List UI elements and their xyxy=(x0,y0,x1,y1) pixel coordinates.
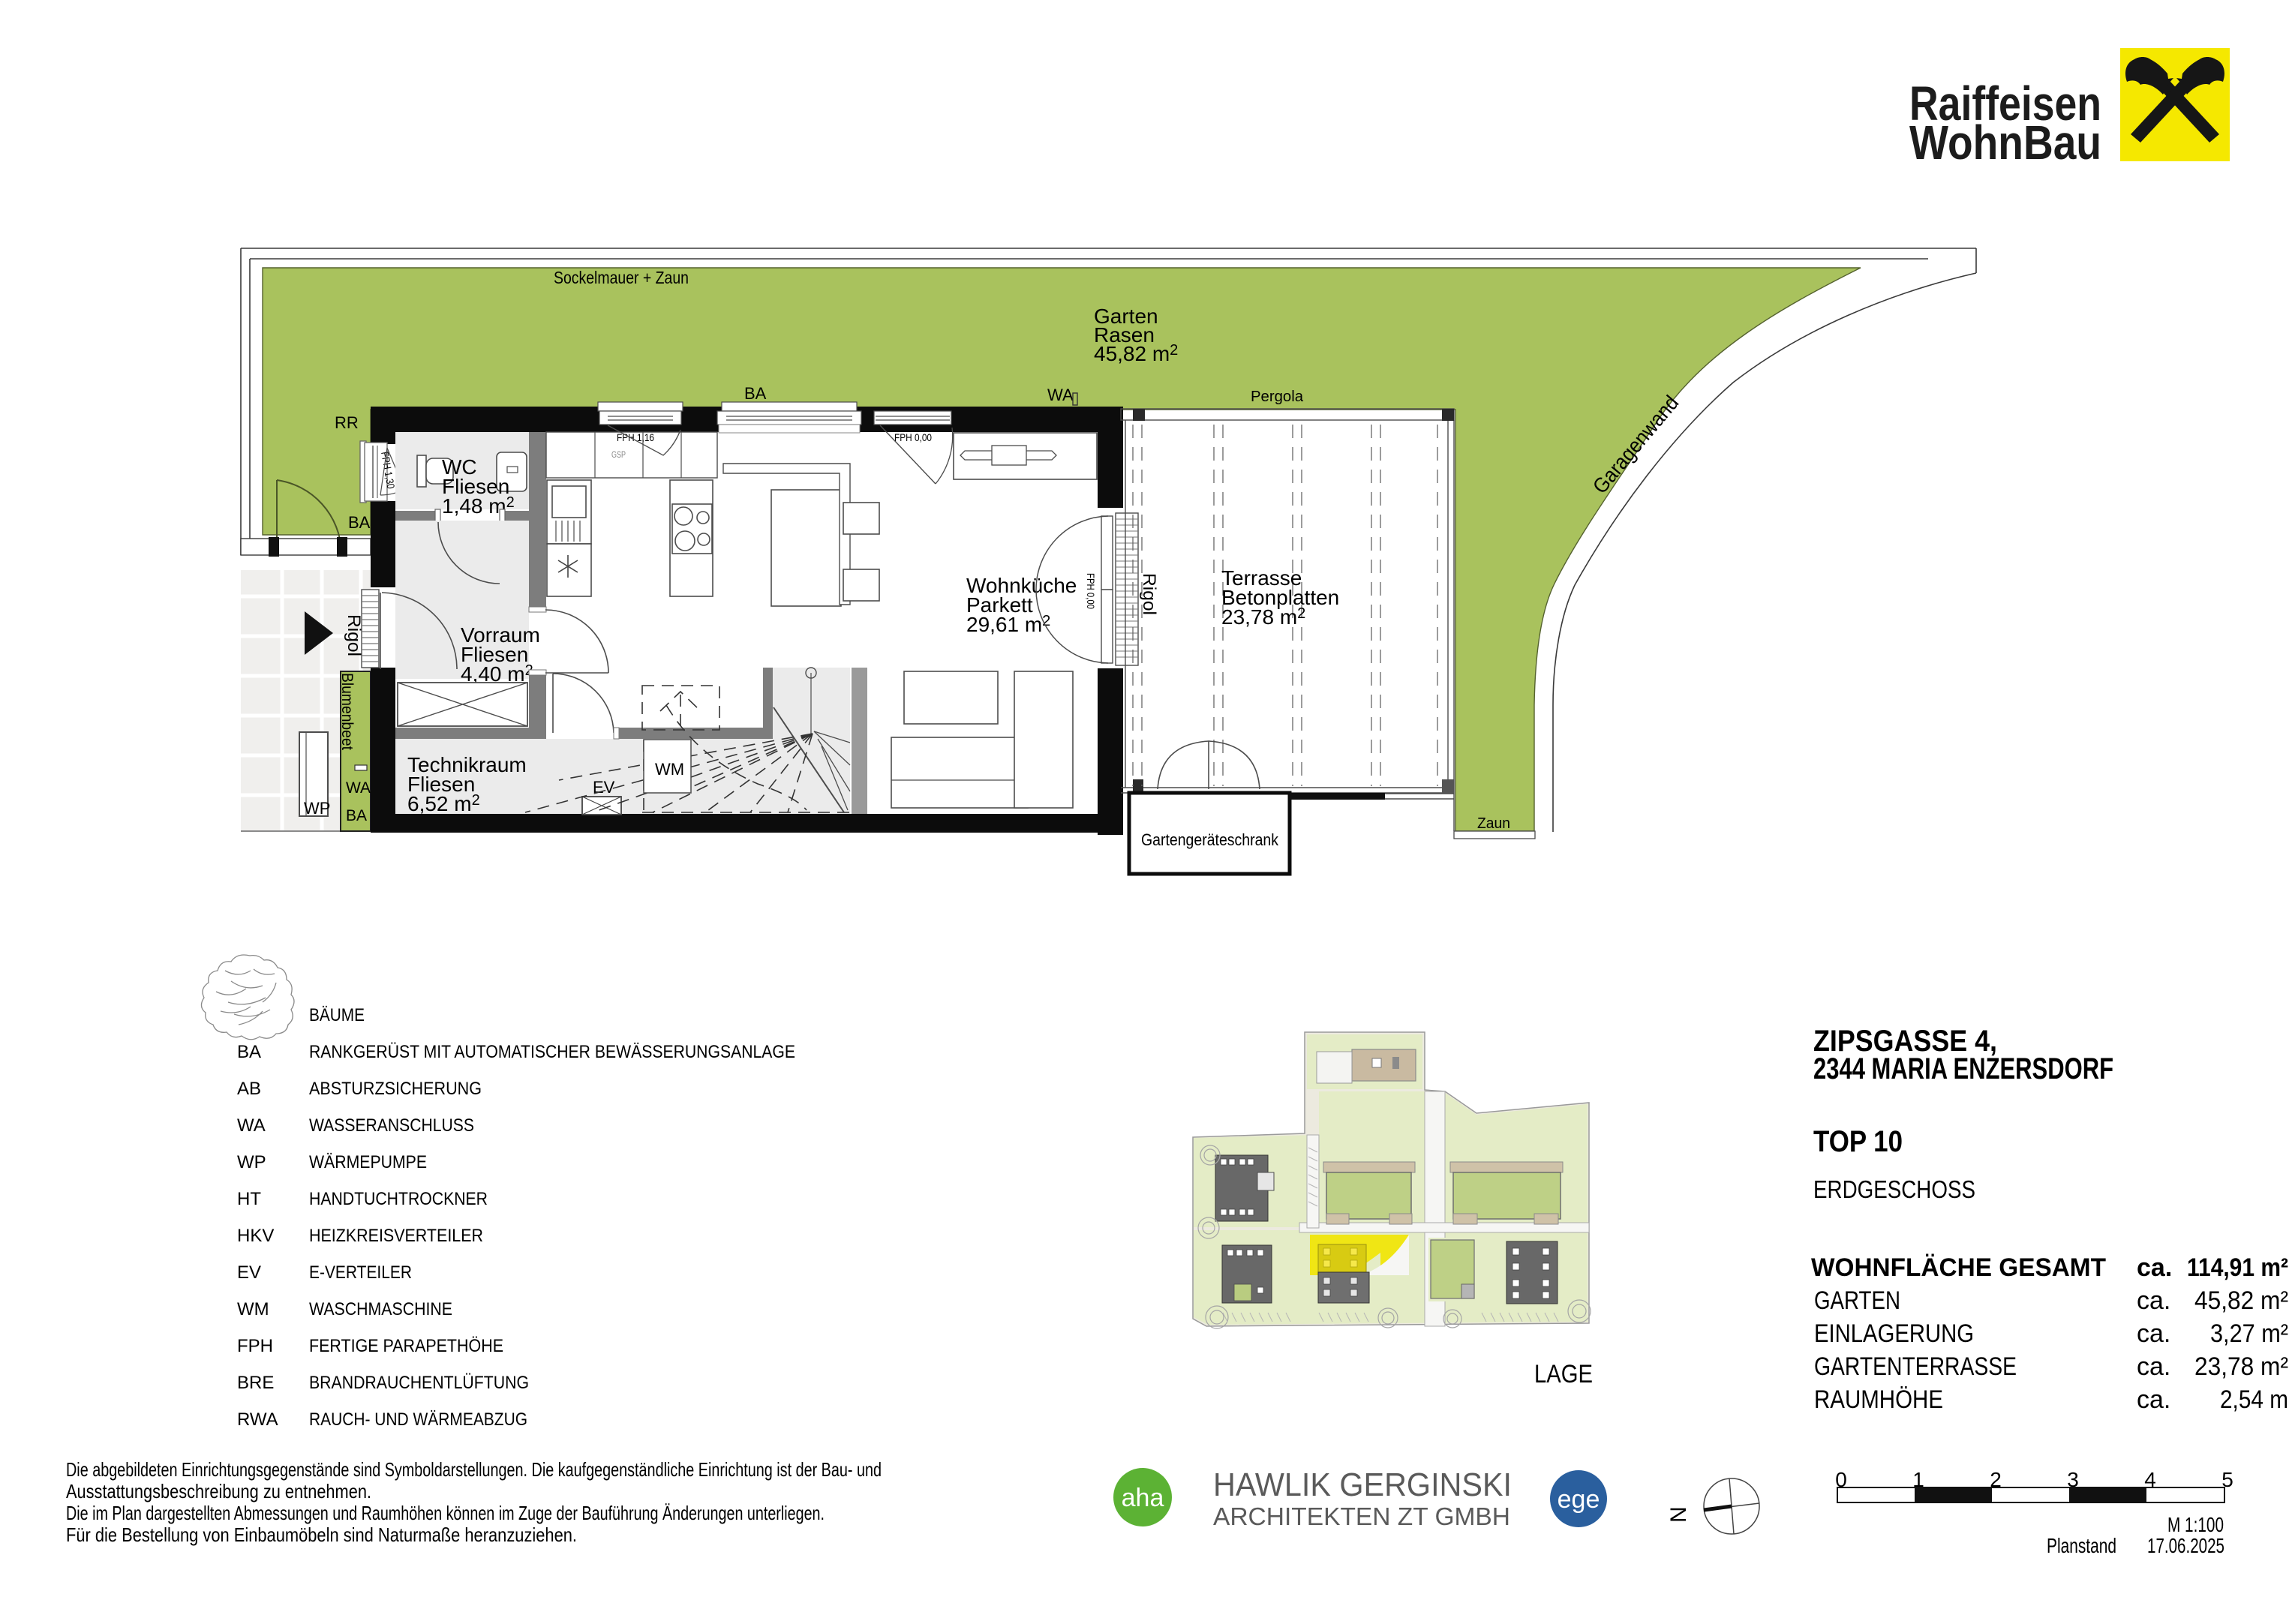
svg-text:FPH 0,00: FPH 0,00 xyxy=(894,431,932,443)
svg-text:BÄUME: BÄUME xyxy=(309,1005,365,1025)
svg-text:23,78 m2: 23,78 m2 xyxy=(1221,605,1305,629)
svg-text:BRANDRAUCHENTLÜFTUNG: BRANDRAUCHENTLÜFTUNG xyxy=(309,1373,529,1393)
svg-text:EV: EV xyxy=(237,1262,261,1283)
svg-text:TOP 10: TOP 10 xyxy=(1813,1125,1903,1158)
svg-text:2,54 m: 2,54 m xyxy=(2220,1385,2288,1414)
svg-text:RAUCH- UND WÄRMEABZUG: RAUCH- UND WÄRMEABZUG xyxy=(309,1409,527,1430)
svg-text:N: N xyxy=(1666,1506,1691,1523)
svg-text:GSP: GSP xyxy=(611,449,626,460)
svg-text:WM: WM xyxy=(237,1299,269,1319)
svg-text:Die abgebildeten Einrichtungsg: Die abgebildeten Einrichtungsgegenstände… xyxy=(66,1458,882,1481)
svg-text:WohnBau: WohnBau xyxy=(1909,116,2101,170)
svg-text:BA: BA xyxy=(237,1042,261,1062)
svg-text:WOHNFLÄCHE GESAMT: WOHNFLÄCHE GESAMT xyxy=(1811,1253,2106,1282)
svg-text:2344 MARIA ENZERSDORF: 2344 MARIA ENZERSDORF xyxy=(1813,1052,2113,1085)
svg-text:HAWLIK GERGINSKI: HAWLIK GERGINSKI xyxy=(1213,1466,1512,1503)
svg-text:ca.: ca. xyxy=(2137,1319,2170,1348)
svg-text:114,91 m²: 114,91 m² xyxy=(2187,1253,2288,1282)
svg-text:GARTEN: GARTEN xyxy=(1814,1286,1900,1315)
svg-text:EINLAGERUNG: EINLAGERUNG xyxy=(1814,1319,1974,1348)
svg-text:Rigol: Rigol xyxy=(344,614,364,656)
svg-text:Gartengeräteschrank: Gartengeräteschrank xyxy=(1141,830,1279,849)
svg-text:BA: BA xyxy=(348,513,371,532)
svg-text:RR: RR xyxy=(335,413,359,432)
svg-text:RANKGERÜST MIT AUTOMATISCHER B: RANKGERÜST MIT AUTOMATISCHER BEWÄSSERUNG… xyxy=(309,1042,795,1062)
svg-text:GARTENTERRASSE: GARTENTERRASSE xyxy=(1814,1352,2017,1381)
svg-text:RAUMHÖHE: RAUMHÖHE xyxy=(1814,1385,1943,1414)
svg-text:ca.: ca. xyxy=(2137,1286,2170,1315)
svg-text:Die im Plan dargestellten Abme: Die im Plan dargestellten Abmessungen un… xyxy=(66,1502,825,1524)
svg-text:WP: WP xyxy=(237,1152,266,1172)
svg-text:45,82 m²: 45,82 m² xyxy=(2194,1286,2288,1315)
svg-text:HT: HT xyxy=(237,1189,261,1209)
svg-text:aha: aha xyxy=(1122,1484,1164,1512)
svg-text:WA: WA xyxy=(346,779,371,797)
svg-text:WP: WP xyxy=(304,799,330,818)
svg-text:E-VERTEILER: E-VERTEILER xyxy=(309,1262,412,1283)
svg-text:ca.: ca. xyxy=(2137,1352,2170,1381)
svg-text:AB: AB xyxy=(237,1079,261,1099)
svg-text:3,27 m²: 3,27 m² xyxy=(2210,1319,2288,1348)
svg-text:Für die Bestellung von Einbaum: Für die Bestellung von Einbaumöbeln sind… xyxy=(66,1523,577,1546)
svg-text:WA: WA xyxy=(237,1115,266,1136)
svg-text:BRE: BRE xyxy=(237,1373,274,1393)
svg-text:M 1:100: M 1:100 xyxy=(2167,1513,2224,1536)
svg-text:WM: WM xyxy=(655,760,684,779)
svg-text:FPH 0,00: FPH 0,00 xyxy=(1085,573,1097,609)
svg-text:HEIZKREISVERTEILER: HEIZKREISVERTEILER xyxy=(309,1226,483,1246)
svg-text:29,61 m2: 29,61 m2 xyxy=(966,613,1050,636)
svg-text:Ausstattungsbeschreibung zu en: Ausstattungsbeschreibung zu entnehmen. xyxy=(66,1480,371,1502)
svg-text:HANDTUCHTROCKNER: HANDTUCHTROCKNER xyxy=(309,1189,488,1209)
svg-text:ARCHITEKTEN ZT GMBH: ARCHITEKTEN ZT GMBH xyxy=(1213,1502,1510,1530)
svg-text:Planstand: Planstand xyxy=(2047,1534,2116,1557)
svg-text:WÄRMEPUMPE: WÄRMEPUMPE xyxy=(309,1152,427,1172)
svg-text:Zaun: Zaun xyxy=(1477,815,1510,832)
svg-text:45,82 m2: 45,82 m2 xyxy=(1094,342,1178,365)
svg-text:6,52 m2: 6,52 m2 xyxy=(407,792,480,815)
svg-text:ca.: ca. xyxy=(2137,1385,2170,1414)
svg-text:ABSTURZSICHERUNG: ABSTURZSICHERUNG xyxy=(309,1079,482,1099)
svg-text:Pergola: Pergola xyxy=(1251,389,1304,405)
svg-text:ERDGESCHOSS: ERDGESCHOSS xyxy=(1813,1175,1975,1203)
svg-text:BA: BA xyxy=(744,384,767,403)
svg-text:ca.: ca. xyxy=(2137,1253,2172,1282)
svg-text:ege: ege xyxy=(1558,1485,1600,1514)
svg-text:EV: EV xyxy=(593,778,615,797)
svg-text:BA: BA xyxy=(346,807,367,824)
svg-text:FERTIGE PARAPETHÖHE: FERTIGE PARAPETHÖHE xyxy=(309,1336,503,1356)
svg-text:FPH: FPH xyxy=(237,1336,273,1356)
svg-text:17.06.2025: 17.06.2025 xyxy=(2147,1534,2224,1557)
svg-text:WASCHMASCHINE: WASCHMASCHINE xyxy=(309,1299,452,1319)
svg-text:LAGE: LAGE xyxy=(1534,1360,1593,1388)
svg-text:RWA: RWA xyxy=(237,1409,278,1430)
svg-text:23,78 m²: 23,78 m² xyxy=(2194,1352,2288,1381)
svg-text:WA: WA xyxy=(1047,386,1074,404)
svg-text:WASSERANSCHLUSS: WASSERANSCHLUSS xyxy=(309,1115,474,1136)
svg-text:HKV: HKV xyxy=(237,1226,274,1246)
svg-text:Sockelmauer + Zaun: Sockelmauer + Zaun xyxy=(554,268,689,287)
svg-text:Blumenbeet: Blumenbeet xyxy=(338,673,356,750)
